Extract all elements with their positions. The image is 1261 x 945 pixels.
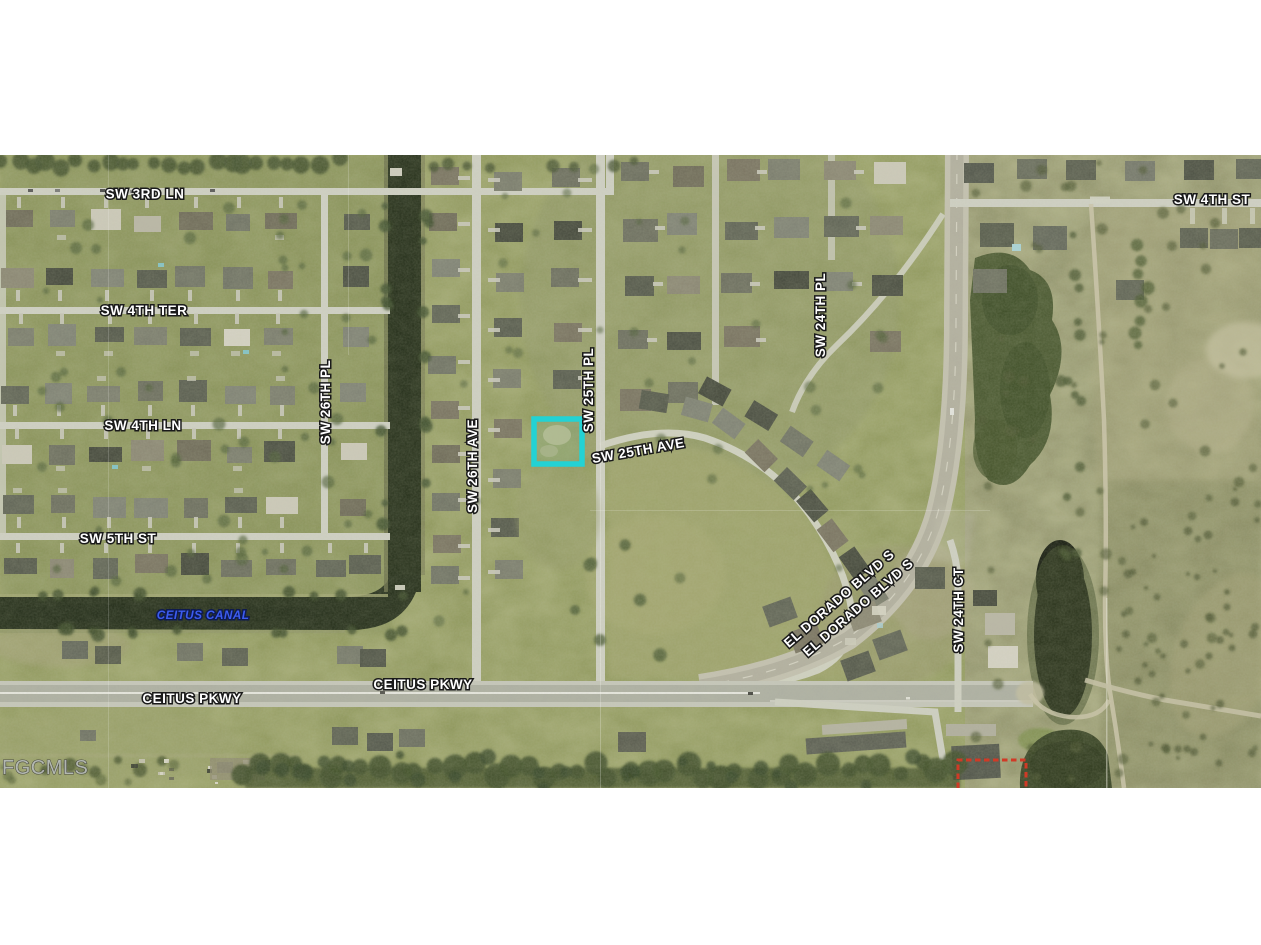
svg-text:CEITUS PKWY: CEITUS PKWY [373, 677, 472, 692]
svg-text:SW 24TH PL: SW 24TH PL [813, 273, 828, 358]
svg-text:SW 4TH LN: SW 4TH LN [104, 418, 181, 433]
svg-text:SW 25TH PL: SW 25TH PL [581, 348, 596, 433]
svg-text:SW 4TH TER: SW 4TH TER [101, 303, 188, 318]
svg-text:FGCMLS: FGCMLS [2, 757, 88, 779]
svg-text:SW 24TH CT: SW 24TH CT [951, 567, 966, 653]
svg-text:CEITUS PKWY: CEITUS PKWY [142, 691, 241, 706]
svg-text:SW 4TH ST: SW 4TH ST [1174, 192, 1251, 207]
svg-text:SW 26TH AVE: SW 26TH AVE [465, 419, 480, 513]
svg-text:SW 5TH ST: SW 5TH ST [80, 531, 157, 546]
svg-text:SW 3RD LN: SW 3RD LN [106, 187, 185, 202]
svg-text:CEITUS CANAL: CEITUS CANAL [157, 608, 250, 622]
svg-text:SW 26TH PL: SW 26TH PL [318, 360, 333, 445]
